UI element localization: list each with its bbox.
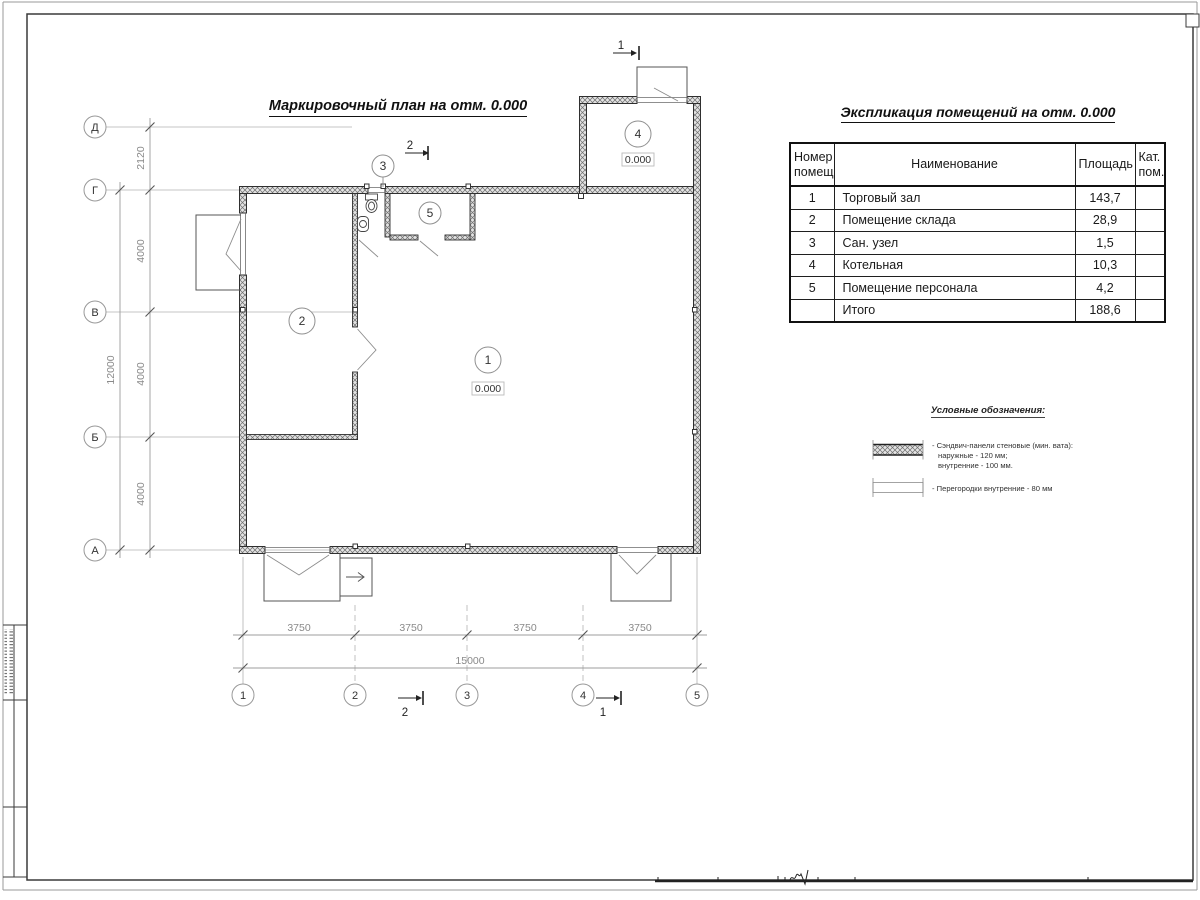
cell-total-area: 188,6 xyxy=(1075,299,1135,322)
table-total-row: Итого 188,6 xyxy=(790,299,1165,322)
table-row: 4 Котельная 10,3 xyxy=(790,254,1165,277)
dim-3750-2: 3750 xyxy=(399,622,423,634)
corner-stamp-box xyxy=(1186,14,1199,27)
section-1-top-label: 1 xyxy=(618,40,624,52)
room-labels: 1 2 3 4 5 xyxy=(289,121,651,373)
floor-plan-drawing: 3750 3750 3750 3750 15000 2120 4000 4000… xyxy=(0,0,1200,900)
cell-area: 10,3 xyxy=(1075,254,1135,277)
cell-category xyxy=(1135,254,1165,277)
cell-number: 1 xyxy=(790,186,834,209)
cell-name: Котельная xyxy=(834,254,1075,277)
dim-12000: 12000 xyxy=(105,355,117,384)
plan-title-text: Маркировочный план на отм. 0.000 xyxy=(269,98,527,117)
title-block-remnant xyxy=(655,870,1193,884)
col-header-category: Кат. пом. xyxy=(1135,143,1165,186)
axis-label-4: 4 xyxy=(580,690,586,702)
cell-area: 4,2 xyxy=(1075,277,1135,300)
table-row: 2 Помещение склада 28,9 xyxy=(790,209,1165,232)
cell-name: Помещение персонала xyxy=(834,277,1075,300)
room-number-3: 3 xyxy=(380,159,387,173)
axis-label-2: 2 xyxy=(352,690,358,702)
room-schedule-table: Номер помещ. Наименование Площадь Кат. п… xyxy=(789,142,1166,323)
legend-symbol-sandwich-panel xyxy=(873,440,923,460)
plan-title: Маркировочный план на отм. 0.000 xyxy=(248,98,548,117)
section-1-bottom-label: 1 xyxy=(600,707,606,719)
dim-4000-2: 4000 xyxy=(135,362,147,386)
cell-area: 28,9 xyxy=(1075,209,1135,232)
cell-name: Помещение склада xyxy=(834,209,1075,232)
section-marks: 2 1 2 1 xyxy=(398,40,639,719)
legend-item-1-line-2: наружные - 120 мм; xyxy=(938,451,1007,460)
axis-label-1: 1 xyxy=(240,690,246,702)
schedule-title-text: Экспликация помещений на отм. 0.000 xyxy=(841,104,1116,123)
section-2-bottom-label: 2 xyxy=(402,707,408,719)
cell-name: Торговый зал xyxy=(834,186,1075,209)
dimension-lines xyxy=(120,118,707,668)
vestibules xyxy=(196,67,687,601)
col-header-name: Наименование xyxy=(834,143,1075,186)
axis-label-3: 3 xyxy=(464,690,470,702)
cell-category xyxy=(1135,277,1165,300)
dim-15000: 15000 xyxy=(455,655,484,667)
cell-number: 3 xyxy=(790,232,834,255)
dimension-labels: 3750 3750 3750 3750 15000 2120 4000 4000… xyxy=(105,146,652,667)
room-number-2: 2 xyxy=(299,314,306,328)
cell-number xyxy=(790,299,834,322)
cell-area: 143,7 xyxy=(1075,186,1135,209)
dim-2120: 2120 xyxy=(135,146,147,170)
legend-title-text: Условные обозначения: xyxy=(931,405,1045,418)
cell-area: 1,5 xyxy=(1075,232,1135,255)
legend-title: Условные обозначения: xyxy=(908,405,1068,418)
cell-number: 4 xyxy=(790,254,834,277)
schedule-header-row: Номер помещ. Наименование Площадь Кат. п… xyxy=(790,143,1165,186)
cell-name: Сан. узел xyxy=(834,232,1075,255)
table-row: 1 Торговый зал 143,7 xyxy=(790,186,1165,209)
legend-symbol-partition xyxy=(873,478,923,497)
axis-label-5: 5 xyxy=(694,690,700,702)
dim-3750-1: 3750 xyxy=(287,622,311,634)
cell-total-label: Итого xyxy=(834,299,1075,322)
room-number-1: 1 xyxy=(485,353,492,367)
col-header-area: Площадь xyxy=(1075,143,1135,186)
legend-item-1-line-3: внутренние - 100 мм. xyxy=(938,461,1013,470)
cell-category xyxy=(1135,299,1165,322)
axis-label-v: В xyxy=(91,307,98,319)
dim-4000-3: 4000 xyxy=(135,482,147,506)
legend-item-2-label: - Перегородки внутренние - 80 мм xyxy=(932,484,1053,493)
axis-label-a: А xyxy=(91,545,99,557)
legend-item-1-line-1: - Сэндвич-панели стеновые (мин. вата): xyxy=(932,441,1073,450)
table-row: 3 Сан. узел 1,5 xyxy=(790,232,1165,255)
dim-3750-4: 3750 xyxy=(628,622,652,634)
dimension-ticks xyxy=(116,123,702,673)
cell-category xyxy=(1135,186,1165,209)
axis-label-d: Д xyxy=(91,122,99,134)
grid-axis-lines xyxy=(106,127,697,684)
left-margin-text-smudge xyxy=(5,629,14,695)
room-number-4: 4 xyxy=(635,127,642,141)
dim-3750-3: 3750 xyxy=(513,622,537,634)
col-header-room-number: Номер помещ. xyxy=(790,143,834,186)
room-number-5: 5 xyxy=(427,206,434,220)
level-mark-room1: 0.000 xyxy=(475,383,501,395)
level-mark-room4: 0.000 xyxy=(625,154,651,166)
axis-label-b: Б xyxy=(91,432,98,444)
cell-category xyxy=(1135,209,1165,232)
cell-number: 2 xyxy=(790,209,834,232)
schedule-title: Экспликация помещений на отм. 0.000 xyxy=(798,104,1158,123)
axis-label-g: Г xyxy=(92,185,98,197)
cell-number: 5 xyxy=(790,277,834,300)
drawing-sheet: { "plan": { "title": "Маркировочный план… xyxy=(0,0,1200,900)
entrance-arrow-icon xyxy=(346,573,364,582)
toilet-icon xyxy=(366,194,378,213)
sink-icon xyxy=(358,217,369,232)
dim-4000-1: 4000 xyxy=(135,239,147,263)
table-row: 5 Помещение персонала 4,2 xyxy=(790,277,1165,300)
cell-category xyxy=(1135,232,1165,255)
section-2-top-label: 2 xyxy=(407,140,413,152)
axis-bubbles: Д Г В Б А 1 2 3 4 5 xyxy=(84,116,708,706)
